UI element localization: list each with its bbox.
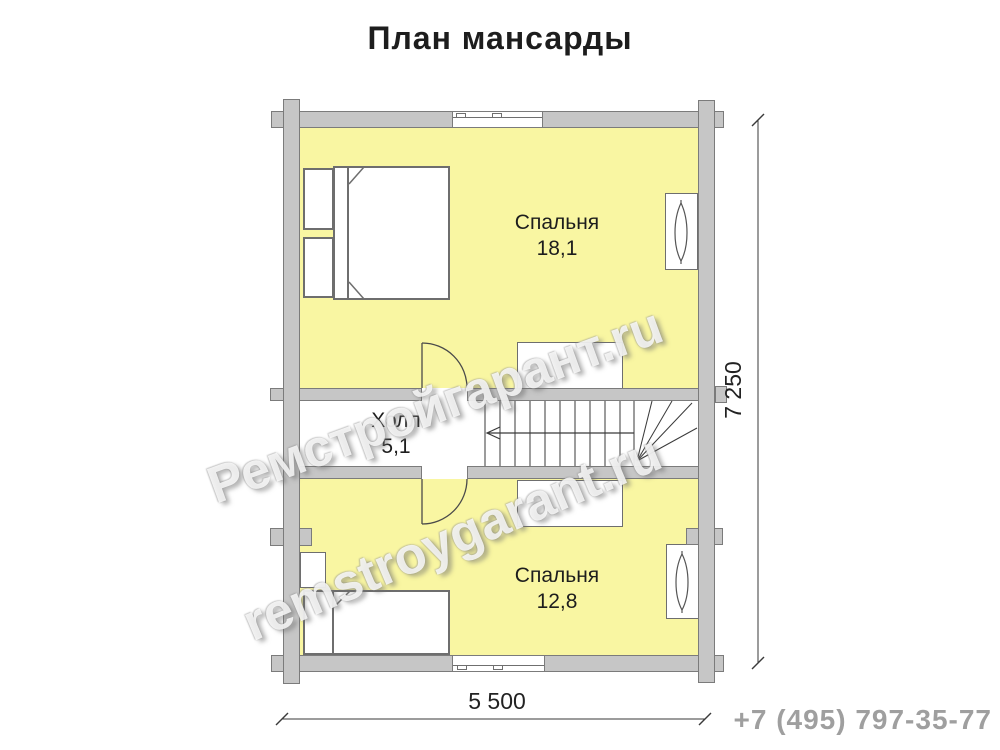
- nightstand: [303, 168, 334, 230]
- window-pane-tick: [493, 665, 503, 670]
- window-top: [452, 111, 543, 128]
- bed-headboard-line: [347, 168, 349, 298]
- room-label-bedroom-bottom: Спальня 12,8: [457, 563, 657, 615]
- nightstand: [303, 237, 334, 298]
- log-joint-stub: [715, 386, 727, 403]
- dimension-line-depth: [752, 114, 764, 669]
- window-pane-tick: [492, 113, 502, 118]
- phone-number: +7 (495) 797-35-77: [733, 704, 992, 736]
- exterior-wall-right: [698, 100, 715, 683]
- radiator-symbol: [665, 193, 698, 270]
- room-area: 18,1: [457, 236, 657, 262]
- window-bottom: [452, 655, 545, 672]
- window-pane-tick: [457, 665, 467, 670]
- dimension-width-label: 5 500: [397, 688, 597, 715]
- room-name: Спальня: [457, 563, 657, 589]
- page-title: План мансарды: [0, 20, 1000, 57]
- window-pane-tick: [456, 113, 466, 118]
- room-area: 12,8: [457, 589, 657, 615]
- floor-plan-page: План мансарды: [0, 0, 1000, 750]
- room-label-bedroom-top: Спальня 18,1: [457, 210, 657, 262]
- room-name: Спальня: [457, 210, 657, 236]
- radiator-symbol: [666, 544, 699, 619]
- double-bed: [333, 166, 450, 300]
